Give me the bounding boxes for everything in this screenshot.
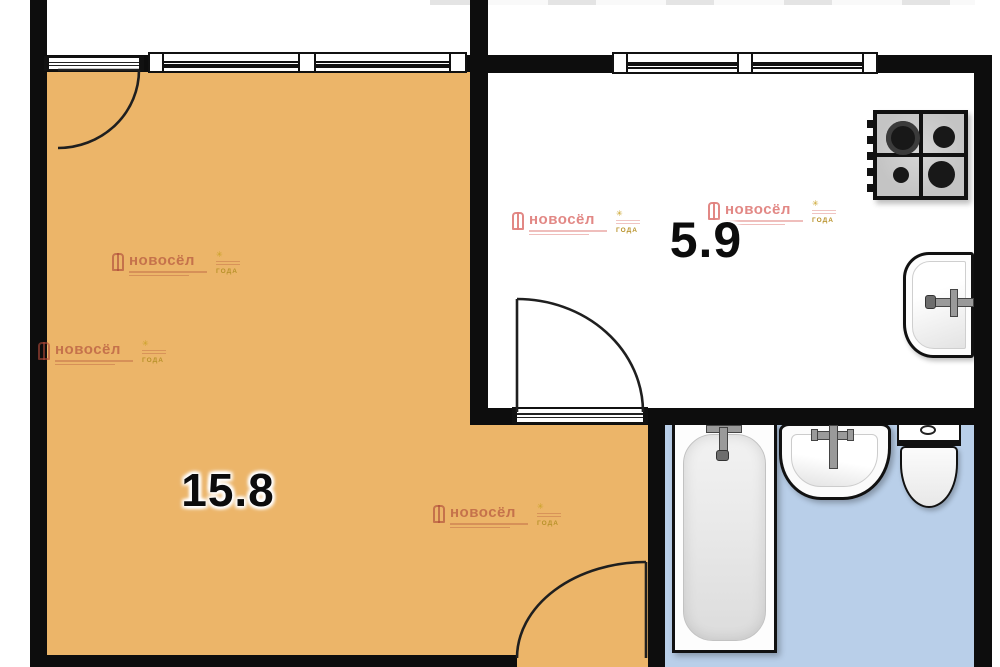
sill-end (512, 407, 517, 424)
kitchen-window (612, 52, 878, 74)
watermark-line (142, 353, 166, 354)
watermark-badge-icon (112, 253, 124, 271)
stove-burner (928, 161, 955, 188)
watermark-badge-icon (38, 342, 50, 360)
wall-bathroom-left (648, 415, 665, 667)
sill-line (49, 62, 139, 64)
watermark-badge-icon (512, 212, 524, 230)
hallway-floor (470, 423, 650, 667)
kitchen-faucet-handle (950, 289, 958, 317)
sill-end (643, 407, 648, 424)
watermark-tagline (55, 360, 133, 362)
watermark: новосёл ✳ ГОДА (433, 505, 561, 528)
watermark-tagline (450, 527, 510, 529)
watermark-line (216, 261, 240, 262)
living-room-area-label: 15.8 (128, 463, 328, 517)
window-frame-cap (612, 52, 628, 74)
stove-burner (933, 126, 955, 148)
window-frame-cap (148, 52, 164, 73)
stove-knob (867, 120, 874, 128)
watermark-years: ГОДА (216, 268, 238, 275)
watermark-star-icon: ✳ (142, 340, 149, 348)
watermark-tagline (129, 271, 207, 273)
watermark-tagline (55, 364, 115, 366)
bathroom-faucet-knob (847, 429, 854, 441)
stove-grid (877, 153, 964, 157)
watermark-tagline (529, 230, 607, 232)
stove-knob (867, 184, 874, 192)
watermark-star-icon: ✳ (537, 503, 544, 511)
watermark-brand: новосёл (450, 505, 528, 520)
wall-right-exterior (974, 55, 992, 667)
living-room-floor (47, 66, 480, 667)
stove-burner (886, 121, 920, 155)
cropped-wall-artifact (430, 0, 975, 5)
bathtub-basin (683, 434, 766, 641)
stove-knob (867, 152, 874, 160)
wall-bottom-exterior (30, 655, 517, 667)
kitchen-area-label: 5.9 (606, 211, 806, 269)
sill-end (44, 56, 49, 71)
window-frame-cap (449, 52, 467, 73)
watermark-brand: новосёл (129, 253, 207, 268)
watermark-line (812, 213, 836, 214)
wall-living-kitchen-divider (470, 0, 488, 425)
watermark-years: ГОДА (812, 217, 834, 224)
watermark-tagline (450, 523, 528, 525)
watermark-line (537, 513, 561, 514)
watermark: новосёл ✳ ГОДА (112, 253, 240, 276)
balcony-door-sill (44, 56, 144, 71)
floor-plan: новосёл ✳ ГОДА новосёл ✳ ГОДА новосёл (0, 0, 1000, 667)
stove-knob (867, 136, 874, 144)
watermark-line (537, 516, 561, 517)
watermark-brand: новосёл (55, 342, 133, 357)
watermark-line (142, 350, 166, 351)
bathtub-faucet-spout (716, 450, 729, 461)
watermark-brand: новосёл (529, 212, 607, 227)
kitchen-faucet-spout (925, 295, 936, 309)
sill-line (49, 65, 139, 67)
watermark-badge-icon (433, 505, 445, 523)
bathroom-faucet-knob (811, 429, 818, 441)
sill-line (517, 417, 643, 419)
sill-line (517, 413, 643, 415)
toilet-tank-icon (897, 422, 961, 442)
watermark-tagline (129, 275, 189, 277)
watermark-years: ГОДА (142, 357, 164, 364)
window-mullion (298, 52, 316, 73)
sill-end (139, 56, 144, 71)
window-mullion (737, 52, 753, 74)
watermark-star-icon: ✳ (812, 200, 819, 208)
stove-burner (893, 167, 909, 183)
watermark-star-icon: ✳ (216, 251, 223, 259)
bathroom-faucet-pipe (829, 425, 838, 469)
window-frame-cap (862, 52, 878, 74)
watermark: новосёл ✳ ГОДА (38, 342, 166, 365)
stove-icon (873, 110, 968, 200)
living-room-window (148, 52, 467, 73)
watermark-line (216, 264, 240, 265)
wall-left-exterior (30, 0, 47, 667)
watermark-years: ГОДА (537, 520, 559, 527)
kitchen-door-sill (512, 407, 648, 424)
watermark-tagline (529, 234, 589, 236)
watermark-line (812, 210, 836, 211)
stove-knob (867, 168, 874, 176)
toilet-flush-button (920, 425, 936, 435)
